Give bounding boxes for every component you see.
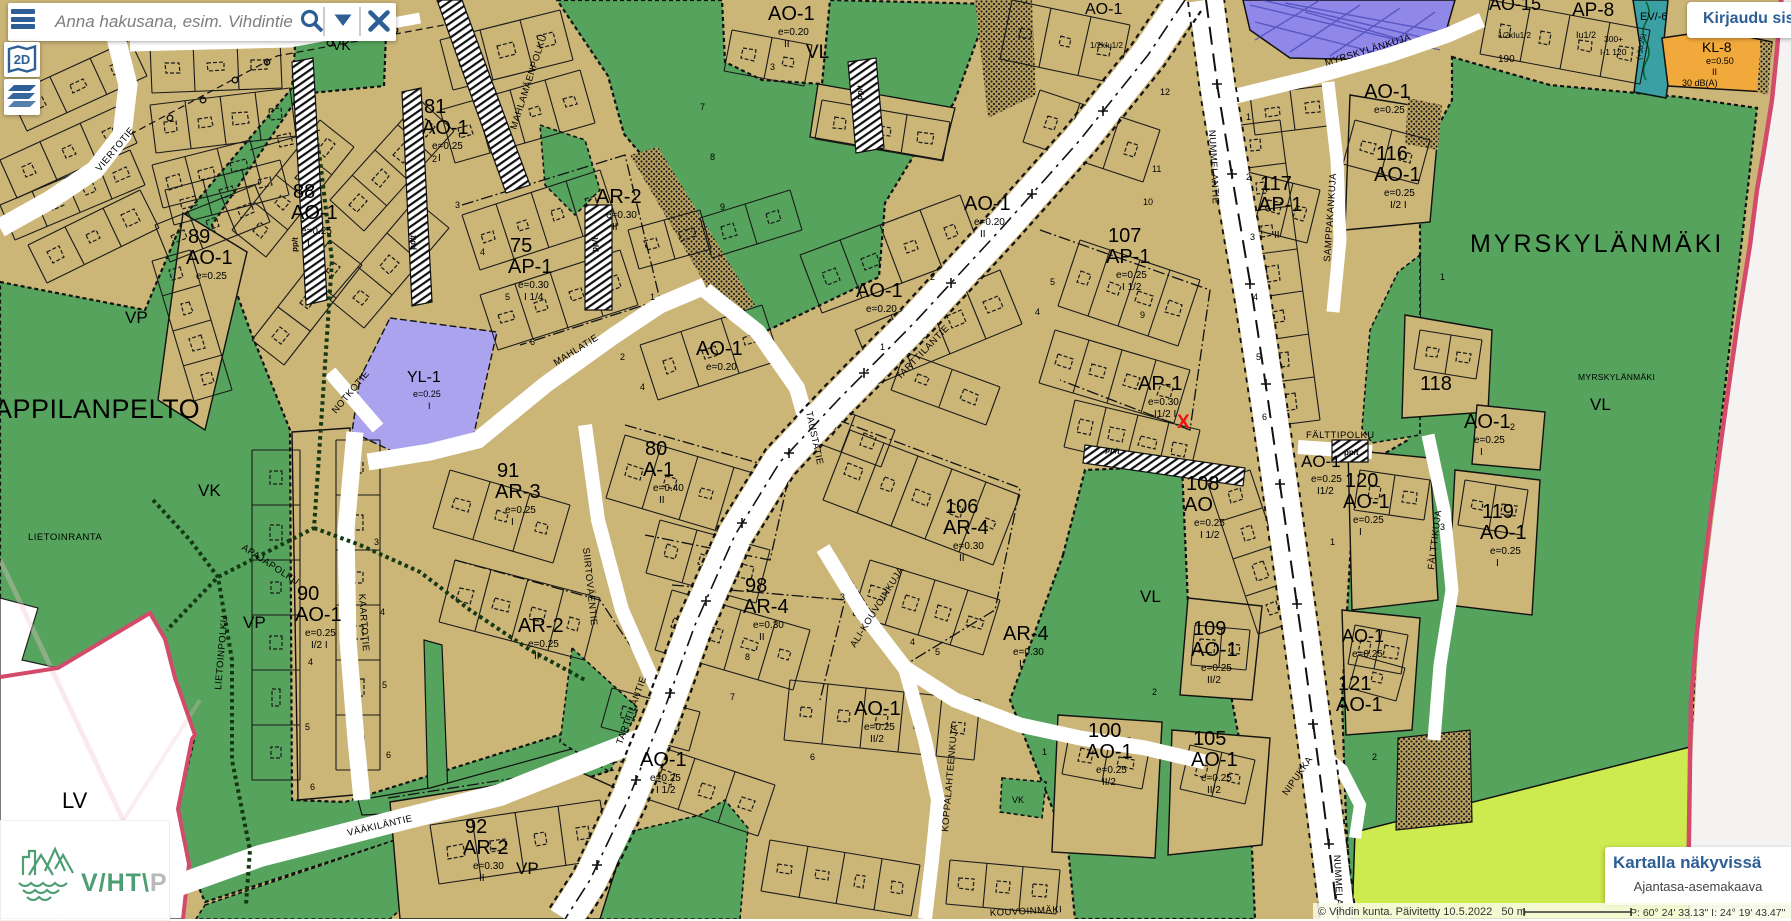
svg-text:2: 2	[620, 352, 625, 362]
svg-text:II: II	[1712, 67, 1717, 77]
svg-text:116: 116	[1376, 143, 1408, 165]
svg-text:120: 120	[1345, 470, 1378, 492]
svg-text:AO-1: AO-1	[964, 193, 1011, 215]
svg-text:II: II	[980, 229, 986, 240]
svg-text:I/2 I: I/2 I	[311, 640, 328, 651]
svg-text:AR-4: AR-4	[1003, 623, 1049, 645]
svg-text:e=0.25: e=0.25	[1116, 270, 1147, 281]
svg-text:109: 109	[1193, 618, 1226, 640]
svg-text:1: 1	[1330, 537, 1335, 547]
svg-text:AO-1: AO-1	[1480, 522, 1527, 544]
svg-text:AO-1: AO-1	[1086, 741, 1133, 763]
svg-text:e=0.25: e=0.25	[1474, 435, 1505, 446]
svg-text:AO-1: AO-1	[422, 117, 469, 139]
svg-text:AO-1: AO-1	[856, 280, 903, 302]
svg-text:VL: VL	[1590, 395, 1611, 414]
svg-text:I/2 I: I/2 I	[1390, 200, 1407, 211]
svg-text:6: 6	[386, 750, 391, 760]
svg-text:I 1/2: I 1/2	[1200, 530, 1220, 541]
svg-text:6: 6	[530, 337, 535, 347]
svg-text:X: X	[1177, 412, 1190, 433]
svg-text:pp/t: pp/t	[855, 85, 865, 100]
svg-text:4: 4	[1035, 307, 1040, 317]
svg-text:I: I	[1019, 659, 1022, 670]
svg-text:e=0.25: e=0.25	[1374, 105, 1405, 116]
svg-text:II: II	[534, 651, 540, 662]
svg-text:6: 6	[810, 752, 815, 762]
svg-text:e=0.25: e=0.25	[305, 628, 336, 639]
svg-text:6: 6	[310, 782, 315, 792]
svg-text:e=0.25: e=0.25	[1311, 474, 1342, 485]
svg-text:I: I	[428, 401, 431, 411]
svg-text:1/2kIu1/2: 1/2kIu1/2	[1090, 41, 1123, 50]
svg-text:e=0.25: e=0.25	[1194, 518, 1225, 529]
svg-text:AR-2: AR-2	[596, 186, 642, 208]
svg-text:AP-8: AP-8	[1572, 0, 1614, 21]
svg-text:2: 2	[930, 272, 935, 282]
svg-text:II: II	[1274, 230, 1280, 241]
svg-text:I 1/4: I 1/4	[524, 292, 544, 303]
svg-text:VL: VL	[806, 42, 829, 63]
svg-text:8: 8	[710, 152, 715, 162]
svg-text:e=0.30: e=0.30	[753, 620, 784, 631]
svg-text:II: II	[784, 39, 790, 50]
svg-text:4: 4	[380, 607, 385, 617]
svg-text:e=0.25: e=0.25	[650, 773, 681, 784]
svg-text:9: 9	[720, 202, 725, 212]
svg-text:2: 2	[1152, 687, 1157, 697]
svg-text:LIETOINRANTA: LIETOINRANTA	[28, 532, 102, 543]
svg-text:89: 89	[188, 226, 210, 248]
svg-text:AP-1: AP-1	[508, 256, 552, 278]
svg-text:AO-1: AO-1	[291, 202, 338, 224]
svg-text:AO-1: AO-1	[696, 338, 743, 360]
svg-text:105: 105	[1193, 728, 1226, 750]
svg-text:7: 7	[730, 692, 735, 702]
svg-text:1: 1	[880, 342, 885, 352]
svg-text:pp/t: pp/t	[1344, 448, 1359, 457]
svg-text:AR-2: AR-2	[518, 615, 564, 637]
svg-text:e=0.30: e=0.30	[953, 541, 984, 552]
svg-text:MYRSKYLÄNMÄKI: MYRSKYLÄNMÄKI	[1578, 372, 1655, 382]
svg-text:5: 5	[382, 680, 387, 690]
svg-text:II/2: II/2	[870, 734, 884, 745]
svg-text:e=0.30: e=0.30	[1148, 397, 1179, 408]
svg-text:I 1/2: I 1/2	[1122, 282, 1142, 293]
svg-text:e=0.50: e=0.50	[1706, 56, 1734, 66]
svg-text:I: I	[307, 238, 310, 249]
svg-text:5: 5	[1050, 277, 1055, 287]
svg-text:119: 119	[1482, 501, 1514, 523]
svg-text:VP: VP	[243, 613, 266, 632]
svg-text:AO-1: AO-1	[295, 604, 342, 626]
svg-text:e=0.20: e=0.20	[706, 362, 737, 373]
svg-text:5: 5	[505, 292, 510, 302]
svg-text:FÄLTTIPOLKU: FÄLTTIPOLKU	[1306, 430, 1375, 441]
svg-text:APPILANPELTO: APPILANPELTO	[0, 394, 200, 424]
svg-text:AR-2: AR-2	[463, 837, 509, 859]
svg-text:I: I	[438, 153, 441, 164]
svg-text:II: II	[959, 553, 965, 564]
svg-text:5: 5	[935, 647, 940, 657]
svg-text:AO-15: AO-15	[1489, 0, 1541, 14]
svg-text:2: 2	[432, 154, 437, 164]
svg-text:I: I	[511, 517, 514, 528]
svg-text:VL: VL	[1140, 587, 1161, 606]
svg-text:4: 4	[480, 247, 485, 257]
svg-text:AO: AO	[1184, 494, 1213, 516]
svg-text:AP-1: AP-1	[1258, 194, 1302, 216]
svg-text:AR-4: AR-4	[943, 517, 989, 539]
svg-text:e=0.20: e=0.20	[866, 304, 897, 315]
svg-text:I: I	[1480, 447, 1483, 458]
svg-text:I1/2: I1/2	[1317, 486, 1334, 497]
svg-text:AO-1: AO-1	[1191, 749, 1238, 771]
svg-text:II/2: II/2	[1207, 675, 1221, 686]
svg-text:75: 75	[510, 235, 532, 257]
svg-text:e=0.25: e=0.25	[528, 639, 559, 650]
svg-text:4: 4	[910, 637, 915, 647]
svg-text:AO-1: AO-1	[1301, 452, 1341, 471]
svg-text:e=0.25: e=0.25	[301, 226, 332, 237]
svg-text:AO-1: AO-1	[640, 749, 687, 771]
svg-text:MYRSKYLÄNMÄKI: MYRSKYLÄNMÄKI	[1470, 230, 1724, 258]
svg-text:6: 6	[1262, 412, 1267, 422]
svg-text:1: 1	[1440, 272, 1445, 282]
svg-text:107: 107	[1108, 225, 1141, 247]
svg-text:AO-1: AO-1	[1085, 1, 1122, 18]
svg-text:4: 4	[1253, 292, 1258, 302]
svg-text:5: 5	[1256, 352, 1261, 362]
svg-text:VP: VP	[125, 308, 148, 327]
svg-text:190: 190	[1498, 54, 1515, 65]
svg-text:2: 2	[1246, 172, 1251, 182]
svg-text:e=0.25: e=0.25	[505, 505, 536, 516]
svg-text:3: 3	[455, 200, 460, 210]
svg-text:108: 108	[1186, 473, 1219, 495]
svg-text:e=0.25: e=0.25	[1490, 546, 1521, 557]
svg-text:91: 91	[497, 460, 519, 482]
svg-text:II: II	[659, 495, 665, 506]
svg-text:AO-1: AO-1	[768, 3, 815, 25]
svg-text:88: 88	[293, 181, 315, 203]
svg-text:AO-1: AO-1	[1336, 694, 1383, 716]
svg-text:AP-1: AP-1	[1138, 373, 1182, 395]
svg-text:AO-1: AO-1	[186, 247, 233, 269]
svg-text:98: 98	[745, 575, 767, 597]
svg-text:90: 90	[297, 583, 319, 605]
svg-text:AO-1: AO-1	[1464, 411, 1511, 433]
svg-text:9: 9	[1140, 310, 1145, 320]
svg-text:e=0.30: e=0.30	[518, 280, 549, 291]
svg-text:3: 3	[374, 537, 379, 547]
svg-text:AO-1: AO-1	[1374, 164, 1421, 186]
svg-text:e=0.25: e=0.25	[1384, 188, 1415, 199]
svg-text:e=0.25: e=0.25	[196, 271, 227, 282]
svg-text:e=0.25: e=0.25	[413, 389, 441, 399]
svg-text:pp/t: pp/t	[290, 237, 300, 252]
svg-text:AP-1: AP-1	[1106, 246, 1150, 268]
svg-text:2: 2	[1510, 422, 1515, 432]
svg-text:5: 5	[305, 722, 310, 732]
svg-text:1: 1	[1246, 112, 1251, 122]
svg-text:e=0.20: e=0.20	[778, 27, 809, 38]
svg-text:12: 12	[1160, 87, 1170, 97]
svg-text:10: 10	[1143, 197, 1153, 207]
svg-text:e=0.30: e=0.30	[606, 210, 637, 221]
svg-text:118: 118	[1420, 373, 1452, 395]
svg-text:LV: LV	[62, 788, 88, 813]
svg-text:AO-1: AO-1	[1191, 639, 1238, 661]
svg-text:100: 100	[1088, 720, 1121, 742]
svg-text:81: 81	[424, 96, 446, 118]
svg-text:II: II	[479, 873, 485, 884]
svg-text:I1/2 I: I1/2 I	[1154, 409, 1176, 420]
svg-text:8: 8	[745, 652, 750, 662]
svg-text:1: 1	[1042, 747, 1047, 757]
svg-text:e=0.25: e=0.25	[1201, 773, 1232, 784]
svg-text:I: I	[1359, 527, 1362, 538]
svg-text:4: 4	[640, 382, 645, 392]
svg-text:AO-1: AO-1	[854, 698, 901, 720]
svg-text:1: 1	[650, 292, 655, 302]
svg-text:80: 80	[645, 438, 667, 460]
svg-text:Iu1/2: Iu1/2	[1576, 30, 1596, 40]
svg-text:4: 4	[308, 657, 313, 667]
svg-text:II: II	[759, 632, 765, 643]
svg-text:AO-1: AO-1	[1342, 626, 1384, 646]
svg-text:II/2: II/2	[1207, 785, 1221, 796]
svg-text:92: 92	[465, 816, 487, 838]
svg-text:7: 7	[700, 102, 705, 112]
svg-text:e=0.30: e=0.30	[1013, 647, 1044, 658]
svg-text:e=0.40: e=0.40	[653, 483, 684, 494]
svg-text:e=0.25: e=0.25	[1201, 663, 1232, 674]
svg-text:3: 3	[1440, 522, 1445, 532]
svg-text:AO-1: AO-1	[1364, 81, 1411, 103]
svg-text:II/2: II/2	[1102, 777, 1116, 788]
svg-text:3: 3	[1250, 232, 1255, 242]
svg-text:2: 2	[1372, 752, 1377, 762]
svg-text:pp/t: pp/t	[590, 237, 600, 252]
svg-text:KL-8: KL-8	[1702, 39, 1732, 55]
svg-text:e=0.30: e=0.30	[473, 861, 504, 872]
svg-text:117: 117	[1260, 173, 1292, 195]
svg-text:A-1: A-1	[643, 459, 674, 481]
svg-text:VP: VP	[516, 859, 539, 878]
svg-text:121: 121	[1338, 673, 1371, 695]
svg-text:YL-1: YL-1	[407, 369, 441, 386]
svg-text:300+: 300+	[1604, 34, 1623, 44]
svg-text:VK: VK	[198, 481, 221, 500]
svg-text:2D: 2D	[14, 52, 31, 67]
svg-text:106: 106	[945, 496, 978, 518]
svg-text:e=0.20: e=0.20	[974, 217, 1005, 228]
svg-text:e=0.25: e=0.25	[432, 141, 463, 152]
svg-text:VK: VK	[1012, 795, 1024, 805]
svg-text:e=0.25: e=0.25	[1096, 765, 1127, 776]
svg-text:1/2kIu1/2: 1/2kIu1/2	[1498, 31, 1531, 40]
svg-text:II: II	[612, 222, 618, 233]
svg-text:I-1 120: I-1 120	[1600, 47, 1627, 57]
svg-text:3: 3	[770, 62, 775, 72]
svg-text:e=0.25: e=0.25	[864, 722, 895, 733]
svg-text:AO-1: AO-1	[1343, 491, 1390, 513]
svg-text:AR-3: AR-3	[495, 481, 541, 503]
svg-text:3: 3	[840, 592, 845, 602]
svg-text:e=0.25: e=0.25	[1352, 649, 1383, 660]
svg-text:e=0.25: e=0.25	[1353, 515, 1384, 526]
svg-text:30 dB(A): 30 dB(A)	[1682, 78, 1718, 88]
svg-text:I: I	[1496, 558, 1499, 569]
svg-text:AR-4: AR-4	[743, 596, 789, 618]
svg-text:EV/-6: EV/-6	[1640, 11, 1668, 23]
svg-text:I 1/2: I 1/2	[656, 785, 676, 796]
svg-text:pp/t: pp/t	[408, 235, 418, 250]
svg-text:11: 11	[1152, 164, 1161, 174]
